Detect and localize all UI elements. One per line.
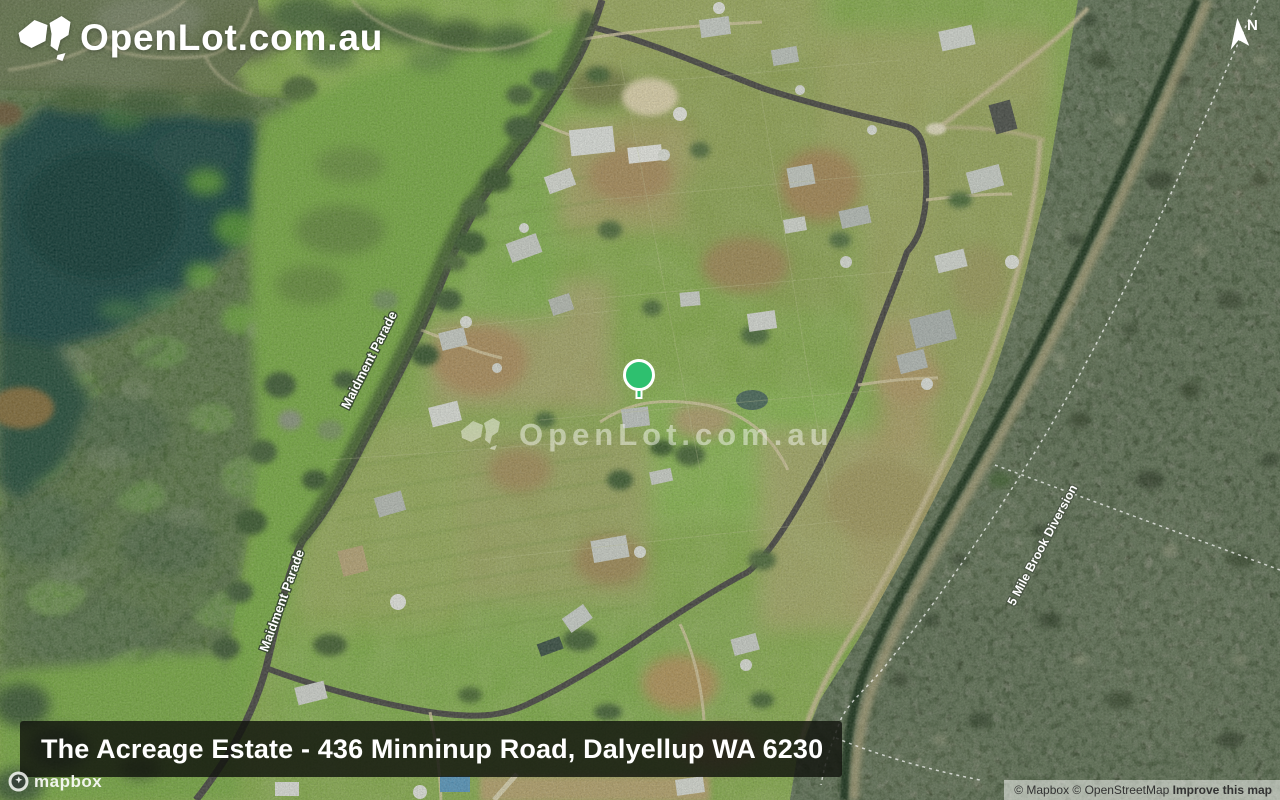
svg-text:N: N (1247, 17, 1258, 34)
svg-text:OpenLot.com.au: OpenLot.com.au (519, 417, 834, 452)
